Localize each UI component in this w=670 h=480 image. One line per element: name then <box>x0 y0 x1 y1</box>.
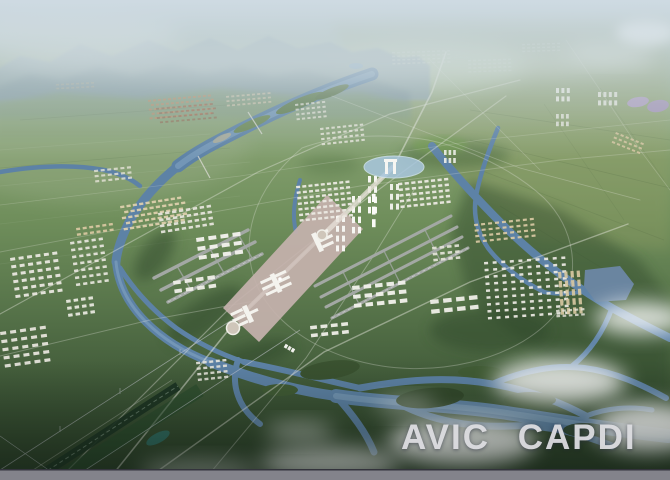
building <box>396 184 399 190</box>
building <box>316 200 320 203</box>
building <box>101 169 105 172</box>
building <box>572 298 576 305</box>
building <box>502 274 506 277</box>
building <box>386 282 394 287</box>
building <box>340 187 344 190</box>
building <box>444 178 448 181</box>
building <box>553 257 557 260</box>
building <box>372 207 376 215</box>
building <box>446 195 450 198</box>
building <box>530 223 534 226</box>
building <box>511 281 515 284</box>
building <box>553 264 557 267</box>
building <box>108 179 112 182</box>
building <box>310 201 314 204</box>
building <box>396 194 399 200</box>
building <box>439 195 443 198</box>
building <box>494 282 498 285</box>
building <box>536 272 540 275</box>
building <box>510 260 514 263</box>
building <box>509 220 513 223</box>
building <box>426 197 430 200</box>
building <box>482 228 486 231</box>
building <box>108 173 112 176</box>
building <box>405 188 409 191</box>
building <box>448 257 453 260</box>
building <box>114 168 118 171</box>
building <box>456 256 461 259</box>
building <box>497 238 501 241</box>
building <box>484 269 488 272</box>
building <box>571 280 575 287</box>
building <box>432 247 437 250</box>
building <box>516 225 520 228</box>
watermark-text: AVIC CAPDI <box>401 418 637 458</box>
building <box>446 200 450 203</box>
building <box>376 292 384 297</box>
building <box>485 275 489 278</box>
building <box>547 306 551 309</box>
building <box>531 234 535 237</box>
building <box>310 195 314 198</box>
building <box>578 298 582 305</box>
building <box>524 235 528 238</box>
building <box>390 194 393 200</box>
building <box>425 185 429 188</box>
building <box>431 309 440 314</box>
building <box>433 252 438 255</box>
building <box>89 303 94 307</box>
building <box>559 281 563 288</box>
building <box>317 211 321 214</box>
building <box>482 234 486 237</box>
building <box>127 166 131 169</box>
scene-canvas <box>0 0 670 480</box>
building <box>399 188 403 191</box>
building <box>341 198 345 201</box>
building <box>503 281 507 284</box>
building <box>495 227 499 230</box>
building <box>335 198 339 201</box>
building <box>330 210 334 213</box>
building <box>425 191 429 194</box>
building <box>331 323 338 327</box>
building <box>519 273 523 276</box>
building <box>522 308 526 311</box>
building <box>538 293 542 296</box>
building <box>317 206 321 209</box>
building <box>513 301 517 304</box>
building <box>535 258 539 261</box>
building <box>353 294 361 299</box>
building <box>439 246 444 249</box>
control-tower <box>278 277 282 281</box>
building <box>556 298 560 301</box>
building <box>375 283 383 288</box>
building <box>474 224 478 227</box>
building <box>489 228 493 231</box>
building <box>522 314 526 317</box>
bottom-bar <box>0 471 670 480</box>
building <box>424 180 428 183</box>
building <box>310 325 317 329</box>
building <box>546 292 550 295</box>
building <box>564 271 568 278</box>
building <box>545 278 549 281</box>
building <box>68 313 73 317</box>
building <box>327 182 331 185</box>
building <box>487 303 491 306</box>
building <box>486 289 490 292</box>
building <box>539 306 543 309</box>
building <box>340 192 344 195</box>
building <box>365 302 373 307</box>
building <box>496 309 500 312</box>
building <box>561 256 565 259</box>
building <box>296 186 300 189</box>
building <box>563 315 567 317</box>
building <box>430 299 439 304</box>
building <box>566 299 570 306</box>
building <box>336 226 339 232</box>
building <box>562 309 566 311</box>
building <box>517 230 521 233</box>
building <box>73 298 78 302</box>
building <box>556 310 560 312</box>
building <box>311 207 315 210</box>
building <box>439 190 443 193</box>
building <box>420 203 424 206</box>
building <box>336 236 339 242</box>
building <box>495 296 499 299</box>
building <box>299 213 303 216</box>
building <box>528 279 532 282</box>
building <box>358 217 361 224</box>
building <box>412 187 416 190</box>
building <box>342 245 345 251</box>
building <box>555 284 559 287</box>
building <box>558 272 562 279</box>
building <box>120 167 124 170</box>
building <box>447 245 452 248</box>
building <box>488 317 492 320</box>
building <box>575 314 579 316</box>
building <box>523 218 527 221</box>
building <box>128 176 132 179</box>
building <box>494 275 498 278</box>
building <box>322 194 326 197</box>
building <box>115 178 119 181</box>
building <box>529 293 533 296</box>
building <box>456 296 465 301</box>
building <box>297 191 301 194</box>
building <box>121 172 125 175</box>
building <box>501 261 505 264</box>
building <box>334 193 338 196</box>
building <box>476 240 480 243</box>
building <box>67 306 72 310</box>
building <box>510 231 514 234</box>
building <box>556 312 560 315</box>
building <box>414 204 418 207</box>
building <box>538 299 542 302</box>
building <box>102 179 106 182</box>
building <box>419 197 423 200</box>
building <box>431 185 435 188</box>
building <box>440 252 445 255</box>
building <box>514 315 518 318</box>
building <box>327 188 331 191</box>
building <box>521 294 525 297</box>
building <box>342 330 349 334</box>
building <box>531 229 535 232</box>
building <box>322 200 326 203</box>
building <box>329 205 333 208</box>
building <box>427 202 431 205</box>
building <box>527 266 531 269</box>
building <box>400 200 404 203</box>
building <box>513 308 517 311</box>
building <box>324 211 328 214</box>
building <box>330 216 334 219</box>
building <box>377 301 385 306</box>
building <box>577 270 581 277</box>
building <box>530 218 534 221</box>
building <box>303 191 307 194</box>
building <box>495 289 499 292</box>
building <box>520 280 524 283</box>
building <box>575 308 579 310</box>
building <box>364 293 372 298</box>
building <box>547 299 551 302</box>
building <box>342 226 345 232</box>
building <box>304 202 308 205</box>
building <box>562 263 566 266</box>
atmospheric-haze <box>0 0 670 160</box>
building <box>368 176 371 183</box>
building <box>363 284 371 289</box>
building <box>114 173 118 176</box>
building <box>489 233 493 236</box>
building <box>82 304 87 308</box>
building <box>346 192 350 195</box>
building <box>581 313 585 315</box>
building <box>530 300 534 303</box>
building <box>486 296 490 299</box>
building <box>306 218 310 221</box>
building <box>475 229 479 232</box>
building <box>311 212 315 215</box>
building <box>413 198 417 201</box>
building <box>66 299 71 303</box>
building <box>445 183 449 186</box>
building <box>545 264 549 267</box>
building <box>495 302 499 305</box>
building <box>399 194 403 197</box>
building <box>329 199 333 202</box>
building <box>90 310 95 314</box>
building <box>521 301 525 304</box>
building <box>577 280 581 287</box>
building <box>347 197 351 200</box>
building <box>520 287 524 290</box>
building <box>432 190 436 193</box>
building <box>483 240 487 243</box>
building <box>475 235 479 238</box>
building <box>495 221 499 224</box>
building <box>406 193 410 196</box>
building <box>504 237 508 240</box>
building <box>503 232 507 235</box>
building <box>346 186 350 189</box>
building-cluster-axis-towers <box>372 194 376 227</box>
building <box>303 196 307 199</box>
building <box>324 216 328 219</box>
building <box>334 187 338 190</box>
building <box>530 307 534 310</box>
building <box>298 208 302 211</box>
building <box>349 214 353 217</box>
building <box>555 291 559 294</box>
building <box>418 186 422 189</box>
building <box>554 271 558 274</box>
building <box>387 291 395 296</box>
building <box>519 266 523 269</box>
building <box>75 312 80 316</box>
building <box>315 189 319 192</box>
building <box>523 224 527 227</box>
building <box>308 184 312 187</box>
building <box>323 205 327 208</box>
building <box>578 289 582 296</box>
building <box>341 322 348 326</box>
building <box>518 236 522 239</box>
building <box>529 286 533 289</box>
building <box>539 313 543 316</box>
building <box>321 189 325 192</box>
building <box>433 258 438 261</box>
building <box>470 305 479 310</box>
building <box>502 221 506 224</box>
building <box>336 245 339 251</box>
building <box>509 225 513 228</box>
building <box>305 207 309 210</box>
building <box>496 316 500 319</box>
building <box>372 219 376 227</box>
building <box>333 182 337 185</box>
building <box>332 331 339 335</box>
building <box>556 315 560 317</box>
building <box>485 282 489 285</box>
building <box>101 174 105 177</box>
building <box>444 307 453 312</box>
building <box>318 217 322 220</box>
building <box>546 285 550 288</box>
building <box>572 289 576 296</box>
building <box>445 189 449 192</box>
building <box>398 280 406 285</box>
building <box>74 305 79 309</box>
building <box>493 268 497 271</box>
building <box>107 168 111 171</box>
building <box>481 223 485 226</box>
building <box>544 258 548 261</box>
building <box>493 261 497 264</box>
building <box>321 332 328 336</box>
building <box>298 202 302 205</box>
building <box>95 175 99 178</box>
building <box>328 193 332 196</box>
building <box>297 197 301 200</box>
building <box>95 180 99 183</box>
building <box>309 190 313 193</box>
frame-line <box>0 469 670 471</box>
plaza-circle-south <box>227 322 240 335</box>
building <box>388 300 396 305</box>
building <box>528 272 532 275</box>
building <box>503 288 507 291</box>
building <box>431 179 435 182</box>
building <box>511 274 515 277</box>
building <box>390 204 393 210</box>
building <box>358 206 361 213</box>
building <box>518 259 522 262</box>
building <box>437 178 441 181</box>
building <box>469 295 478 300</box>
building <box>504 295 508 298</box>
building <box>339 181 343 184</box>
building <box>354 303 362 308</box>
building <box>487 310 491 313</box>
building <box>556 305 560 308</box>
building <box>121 177 125 180</box>
building <box>400 298 408 303</box>
building <box>527 259 531 262</box>
building <box>419 192 423 195</box>
building <box>440 201 444 204</box>
building <box>454 244 459 247</box>
building <box>457 306 466 311</box>
building <box>443 298 452 303</box>
building <box>433 196 437 199</box>
building <box>581 308 585 310</box>
building <box>390 184 393 190</box>
building <box>300 219 304 222</box>
building <box>568 309 572 311</box>
building <box>352 227 355 234</box>
building <box>127 171 131 174</box>
building <box>352 285 360 290</box>
building <box>441 258 446 261</box>
building <box>569 314 573 316</box>
building <box>505 309 509 312</box>
building <box>524 230 528 233</box>
building <box>305 213 309 216</box>
building <box>505 316 509 319</box>
building <box>565 280 569 287</box>
building <box>94 170 98 173</box>
aerial-masterplan-rendering: AVIC CAPDI <box>0 0 670 480</box>
building <box>502 226 506 229</box>
building <box>536 265 540 268</box>
building <box>545 271 549 274</box>
building <box>560 299 564 306</box>
building <box>570 271 574 278</box>
building <box>438 184 442 187</box>
building <box>312 218 316 221</box>
building <box>368 197 371 204</box>
building <box>400 205 404 208</box>
